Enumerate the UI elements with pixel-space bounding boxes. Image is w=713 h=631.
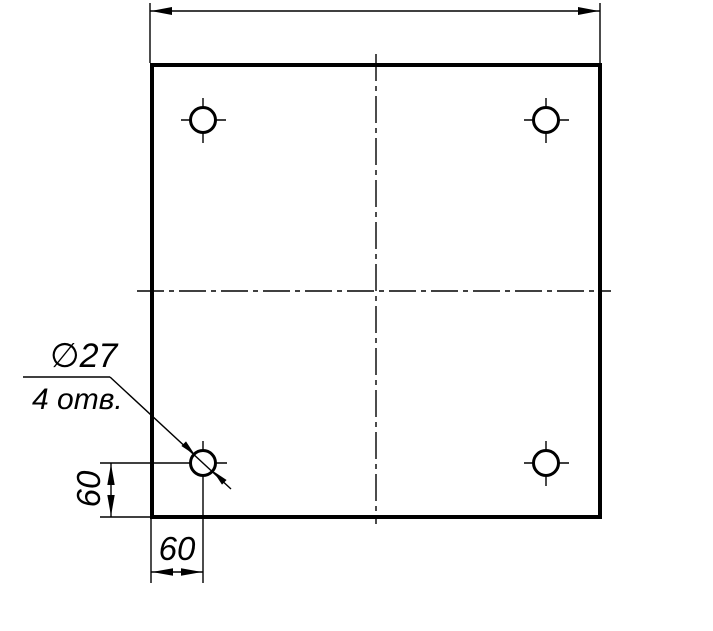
dimension-left-arrow-down [107, 495, 114, 516]
dimension-left-60: 60 [70, 463, 151, 517]
hole-count-label: 4 отв. [32, 383, 123, 416]
dimension-bottom-arrow-right [181, 568, 202, 575]
technical-drawing-canvas: 60 60 ∅27 4 отв. [0, 0, 713, 631]
dimension-left-arrow-up [107, 464, 114, 485]
dimension-bottom-60: 60 [151, 519, 203, 583]
hole-bottom-right [524, 441, 569, 486]
hole-top-left [181, 98, 226, 143]
dimension-top-arrow-left [151, 7, 172, 15]
dimension-top-arrow-right [578, 7, 599, 15]
hole-bottom-right-circle [534, 451, 559, 476]
dimension-left-value: 60 [70, 470, 107, 507]
hole-top-right-circle [534, 108, 559, 133]
dimension-bottom-value: 60 [159, 530, 196, 567]
leader-diagonal-line [110, 377, 231, 489]
hole-top-right [524, 98, 569, 143]
dimension-bottom-arrow-left [152, 568, 173, 575]
leader-arrow-upper [181, 441, 195, 455]
dimension-top-overall [150, 3, 600, 63]
drawing-sheet: 60 60 ∅27 4 отв. [0, 0, 713, 631]
hole-top-left-circle [191, 108, 216, 133]
hole-diameter-label: ∅27 [50, 337, 119, 375]
